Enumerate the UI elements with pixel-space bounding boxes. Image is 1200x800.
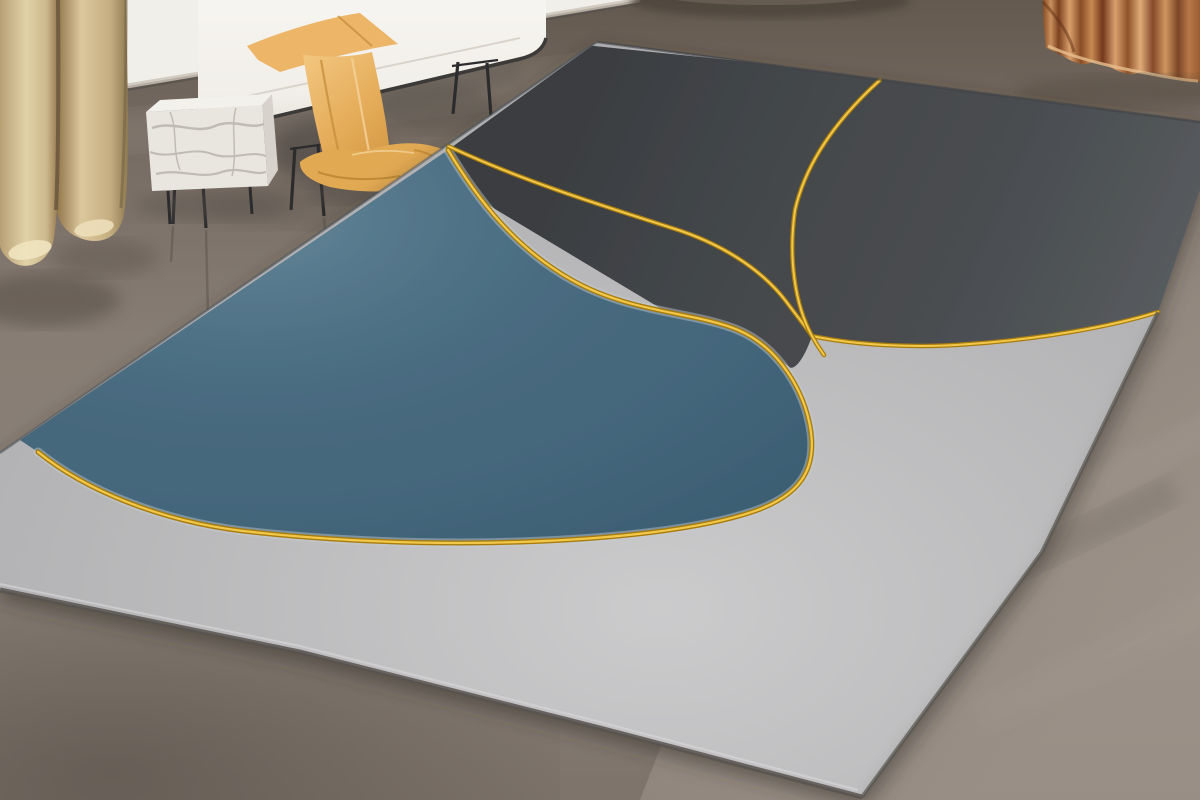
cube-floor-shadow [134,191,290,221]
rolls-floor-shadow [53,240,157,276]
curtain-roll [56,0,128,241]
photo-canvas [0,0,1200,800]
room-photo [0,0,1200,800]
marble-cube-stool [134,94,290,224]
curtain-roll [0,0,58,266]
cube-front-face [146,105,268,191]
